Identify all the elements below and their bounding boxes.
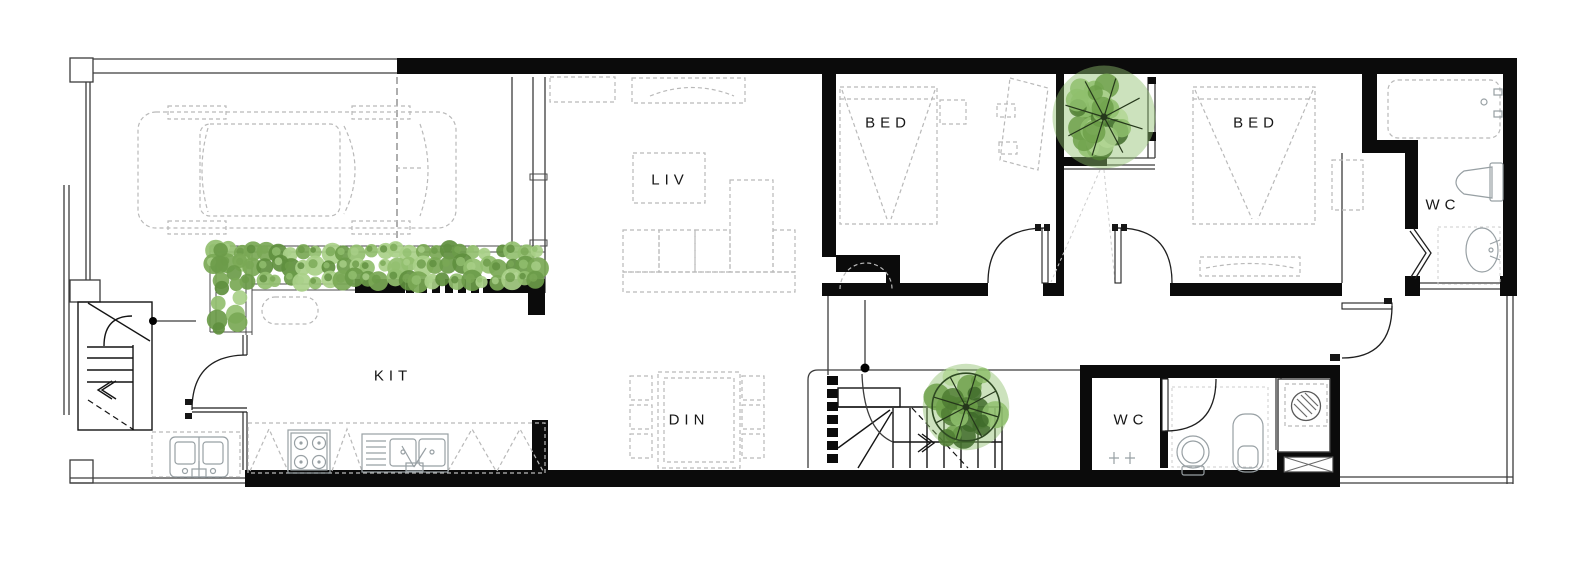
room-label-bedroom-right: BED	[1233, 115, 1279, 132]
stair-marker-dot	[149, 317, 157, 325]
outdoor-sink	[170, 437, 228, 477]
room-label-bedroom-left: BED	[865, 115, 911, 132]
room-label-bathroom-upper: WC	[1426, 197, 1461, 214]
room-label-dining: DIN	[669, 412, 710, 429]
stair-marker-dot	[861, 364, 870, 373]
room-label-kitchen: KIT	[374, 368, 412, 385]
floor-plan: LIV KIT DIN BED BED WC WC	[0, 0, 1582, 570]
stair-cut-wall	[827, 376, 838, 463]
plan-drawing	[0, 0, 1582, 570]
entry-door	[185, 355, 247, 419]
washing-machine	[1278, 379, 1330, 452]
room-label-living: LIV	[651, 172, 689, 189]
floor-vent	[1284, 457, 1333, 472]
exterior-staircase	[78, 302, 196, 430]
room-bathroom-upper	[1380, 75, 1503, 285]
room-bedroom-left	[836, 75, 1056, 283]
room-bedroom-right	[1160, 75, 1360, 283]
room-label-bathroom-lower: WC	[1114, 412, 1149, 429]
terrace	[1340, 295, 1510, 480]
